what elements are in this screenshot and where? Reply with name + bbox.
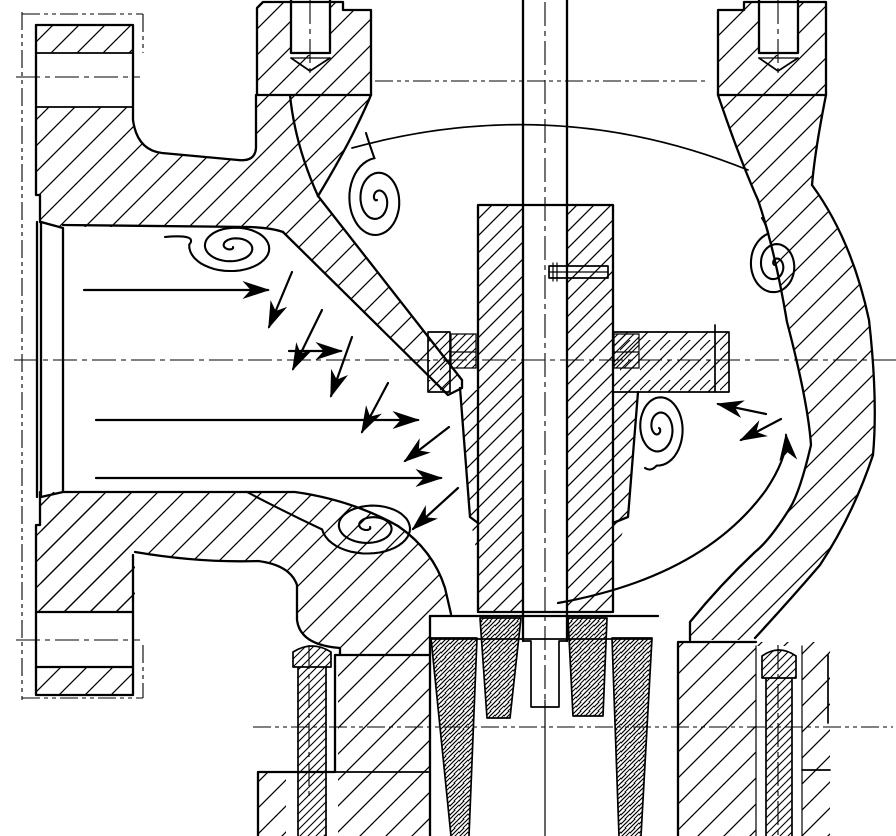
deflection-flow-arrow xyxy=(362,383,388,432)
deflection-flow-arrow xyxy=(269,272,292,327)
deflection-flow-arrow xyxy=(331,337,352,396)
seal-ring-left xyxy=(451,334,476,368)
outlet-flow-arrow xyxy=(718,404,766,414)
upper-left-body xyxy=(36,95,462,395)
valve-section-svg: Globe control valve cross-section with f… xyxy=(0,0,896,836)
deflection-flow-arrow xyxy=(405,427,449,461)
stud-right-shaft xyxy=(766,678,792,836)
valve-section-drawing: Globe control valve cross-section with f… xyxy=(0,0,896,836)
inlet-flange-bottom-band xyxy=(36,667,133,695)
bolt-hole-band-top xyxy=(36,53,133,107)
packing-inner-right xyxy=(568,618,607,716)
inlet-flange-top-band xyxy=(36,25,133,53)
deflection-flow-arrow xyxy=(413,488,458,529)
vortex-swirl xyxy=(165,228,269,271)
bottom-left-slab xyxy=(258,655,430,836)
outlet-flow-arrow xyxy=(741,419,781,440)
inlet-flange-bottom-block xyxy=(36,497,133,612)
bottom-right-slab xyxy=(678,642,830,836)
vortex-swirl xyxy=(640,397,682,469)
vortex-swirl xyxy=(349,133,399,235)
stud-left-shaft xyxy=(298,667,326,836)
plug-skirt-right xyxy=(613,390,638,560)
stud-right-head xyxy=(762,650,796,678)
seal-ring-right xyxy=(614,334,639,368)
